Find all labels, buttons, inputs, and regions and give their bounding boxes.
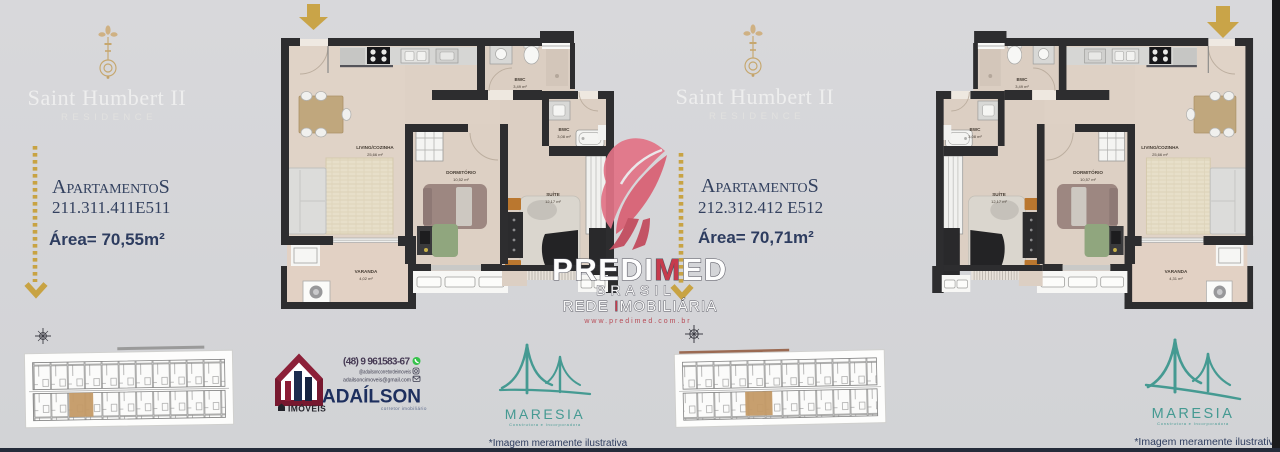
svg-text:Construtora e Incorporadora: Construtora e Incorporadora [1157, 421, 1229, 426]
svg-text:www.predimed.com.br: www.predimed.com.br [583, 318, 691, 325]
svg-text:BWC: BWC [515, 77, 527, 82]
svg-text:corretor imobiliário: corretor imobiliário [381, 406, 427, 411]
svg-text:RESIDENCE: RESIDENCE [61, 112, 157, 123]
svg-text:3,49 m²: 3,49 m² [1015, 84, 1029, 89]
svg-text:10,52 m²: 10,52 m² [453, 177, 469, 182]
svg-text:Saint Humbert II: Saint Humbert II [676, 84, 835, 109]
svg-text:Construtora e Incorporadora: Construtora e Incorporadora [509, 422, 581, 427]
svg-text:BWC: BWC [1017, 77, 1029, 82]
svg-text:RESIDENCE: RESIDENCE [709, 111, 805, 122]
svg-text:212.312.412 E512: 212.312.412 E512 [698, 198, 823, 217]
svg-text:IMÓVEIS: IMÓVEIS [288, 403, 326, 414]
svg-text:LIVING/COZINHA: LIVING/COZINHA [1141, 145, 1179, 150]
svg-text:*Imagem meramente ilustrativa: *Imagem meramente ilustrativa [1134, 436, 1279, 448]
svg-text:VARANDA: VARANDA [1165, 269, 1188, 274]
svg-text:211.311.411E511: 211.311.411E511 [52, 198, 170, 217]
svg-text:ApartamentoS: ApartamentoS [52, 176, 170, 198]
svg-text:DORMITÓRIO: DORMITÓRIO [1073, 168, 1103, 175]
svg-text:DORMITÓRIO: DORMITÓRIO [446, 168, 476, 175]
svg-text:BWC: BWC [970, 127, 982, 132]
svg-text:3,08 m²: 3,08 m² [557, 134, 571, 139]
svg-text:SUÍTE: SUÍTE [546, 190, 560, 197]
svg-text:12,17 m²: 12,17 m² [991, 199, 1007, 204]
svg-text:LIVING/COZINHA: LIVING/COZINHA [356, 145, 394, 150]
svg-text:ApartamentoS: ApartamentoS [701, 175, 819, 197]
svg-text:25,66 m²: 25,66 m² [1152, 152, 1168, 157]
svg-text:MARESIA: MARESIA [505, 406, 586, 422]
svg-text:Área= 70,71m²: Área= 70,71m² [698, 228, 814, 247]
svg-text:REDE IMOBILIÁRIA: REDE IMOBILIÁRIA [562, 298, 717, 315]
svg-text:10,57 m²: 10,57 m² [1080, 177, 1096, 182]
svg-text:@adailsoncorretordeimoveis: @adailsoncorretordeimoveis [359, 370, 411, 376]
svg-text:BRASIL: BRASIL [596, 282, 676, 298]
svg-text:*Imagem meramente ilustrativa: *Imagem meramente ilustrativa [489, 438, 628, 449]
svg-text:3,49 m²: 3,49 m² [513, 84, 527, 89]
svg-text:12,17 m²: 12,17 m² [545, 199, 561, 204]
svg-text:4,02 m²: 4,02 m² [359, 276, 373, 281]
svg-text:MARESIA: MARESIA [1152, 406, 1235, 422]
svg-text:adailsoncimoveis@gmail.com: adailsoncimoveis@gmail.com [343, 378, 411, 384]
svg-text:4,31 m²: 4,31 m² [1169, 276, 1183, 281]
svg-text:ADAÍLSON: ADAÍLSON [322, 386, 421, 408]
svg-text:(48) 9 961583-67: (48) 9 961583-67 [343, 357, 410, 368]
svg-text:SUÍTE: SUÍTE [992, 190, 1006, 197]
svg-text:Saint Humbert II: Saint Humbert II [28, 85, 187, 110]
svg-text:VARANDA: VARANDA [355, 269, 378, 274]
svg-text:25,66 m²: 25,66 m² [367, 152, 383, 157]
svg-text:BWC: BWC [559, 127, 571, 132]
svg-text:Área= 70,55m²: Área= 70,55m² [49, 230, 165, 249]
svg-text:3,08 m²: 3,08 m² [968, 134, 982, 139]
